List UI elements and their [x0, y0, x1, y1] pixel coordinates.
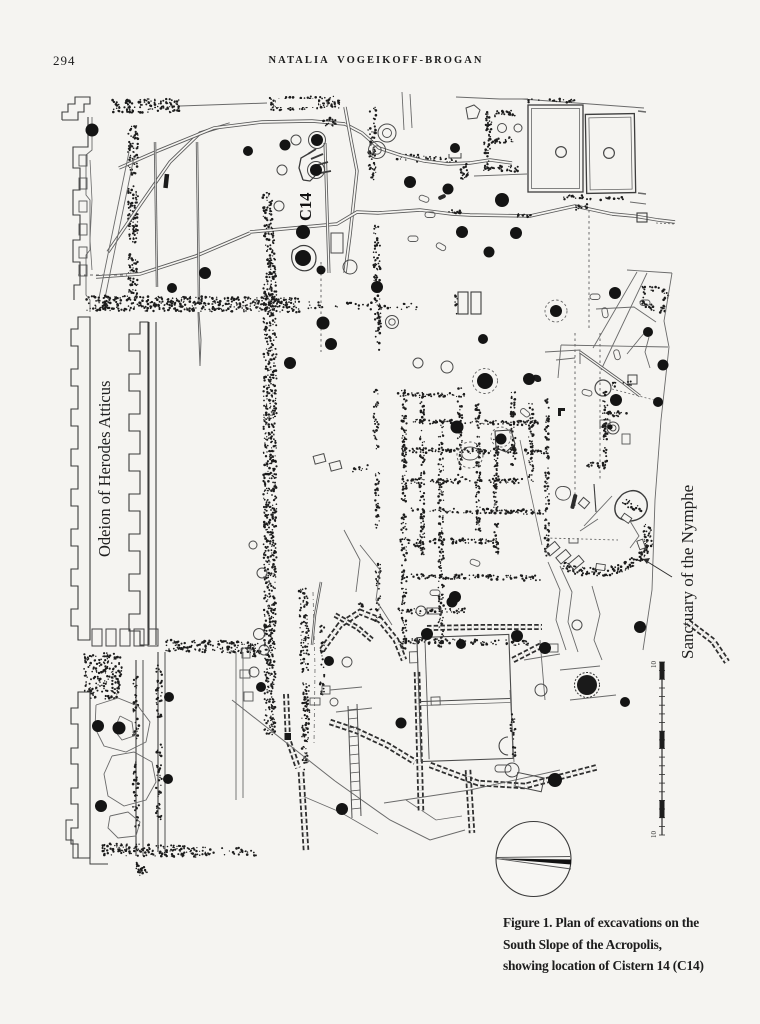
- svg-text:Sanctuary of the Nymphe: Sanctuary of the Nymphe: [678, 485, 697, 659]
- svg-text:C14: C14: [296, 193, 315, 221]
- svg-text:Odeion of Herodes Atticus: Odeion of Herodes Atticus: [95, 381, 114, 557]
